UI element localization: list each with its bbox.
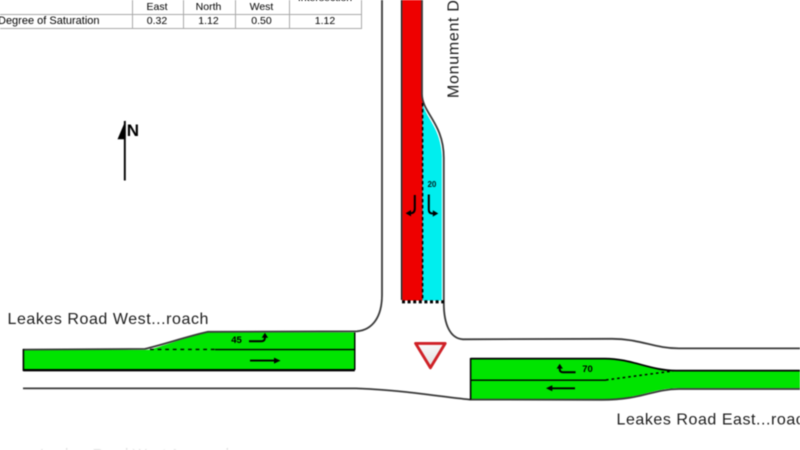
svg-text:Monument D: Monument D [446,0,463,98]
svg-text:70: 70 [582,364,593,375]
svg-text:Leakes Road West...roach: Leakes Road West...roach [8,311,209,328]
svg-text:20: 20 [427,180,436,189]
svg-text:45: 45 [231,335,242,346]
svg-text:Leakes Road West Approach: Leakes Road West Approach [40,446,234,450]
svg-text:N: N [127,121,139,140]
svg-text:Leakes Road East...roach: Leakes Road East...roach [617,412,800,429]
